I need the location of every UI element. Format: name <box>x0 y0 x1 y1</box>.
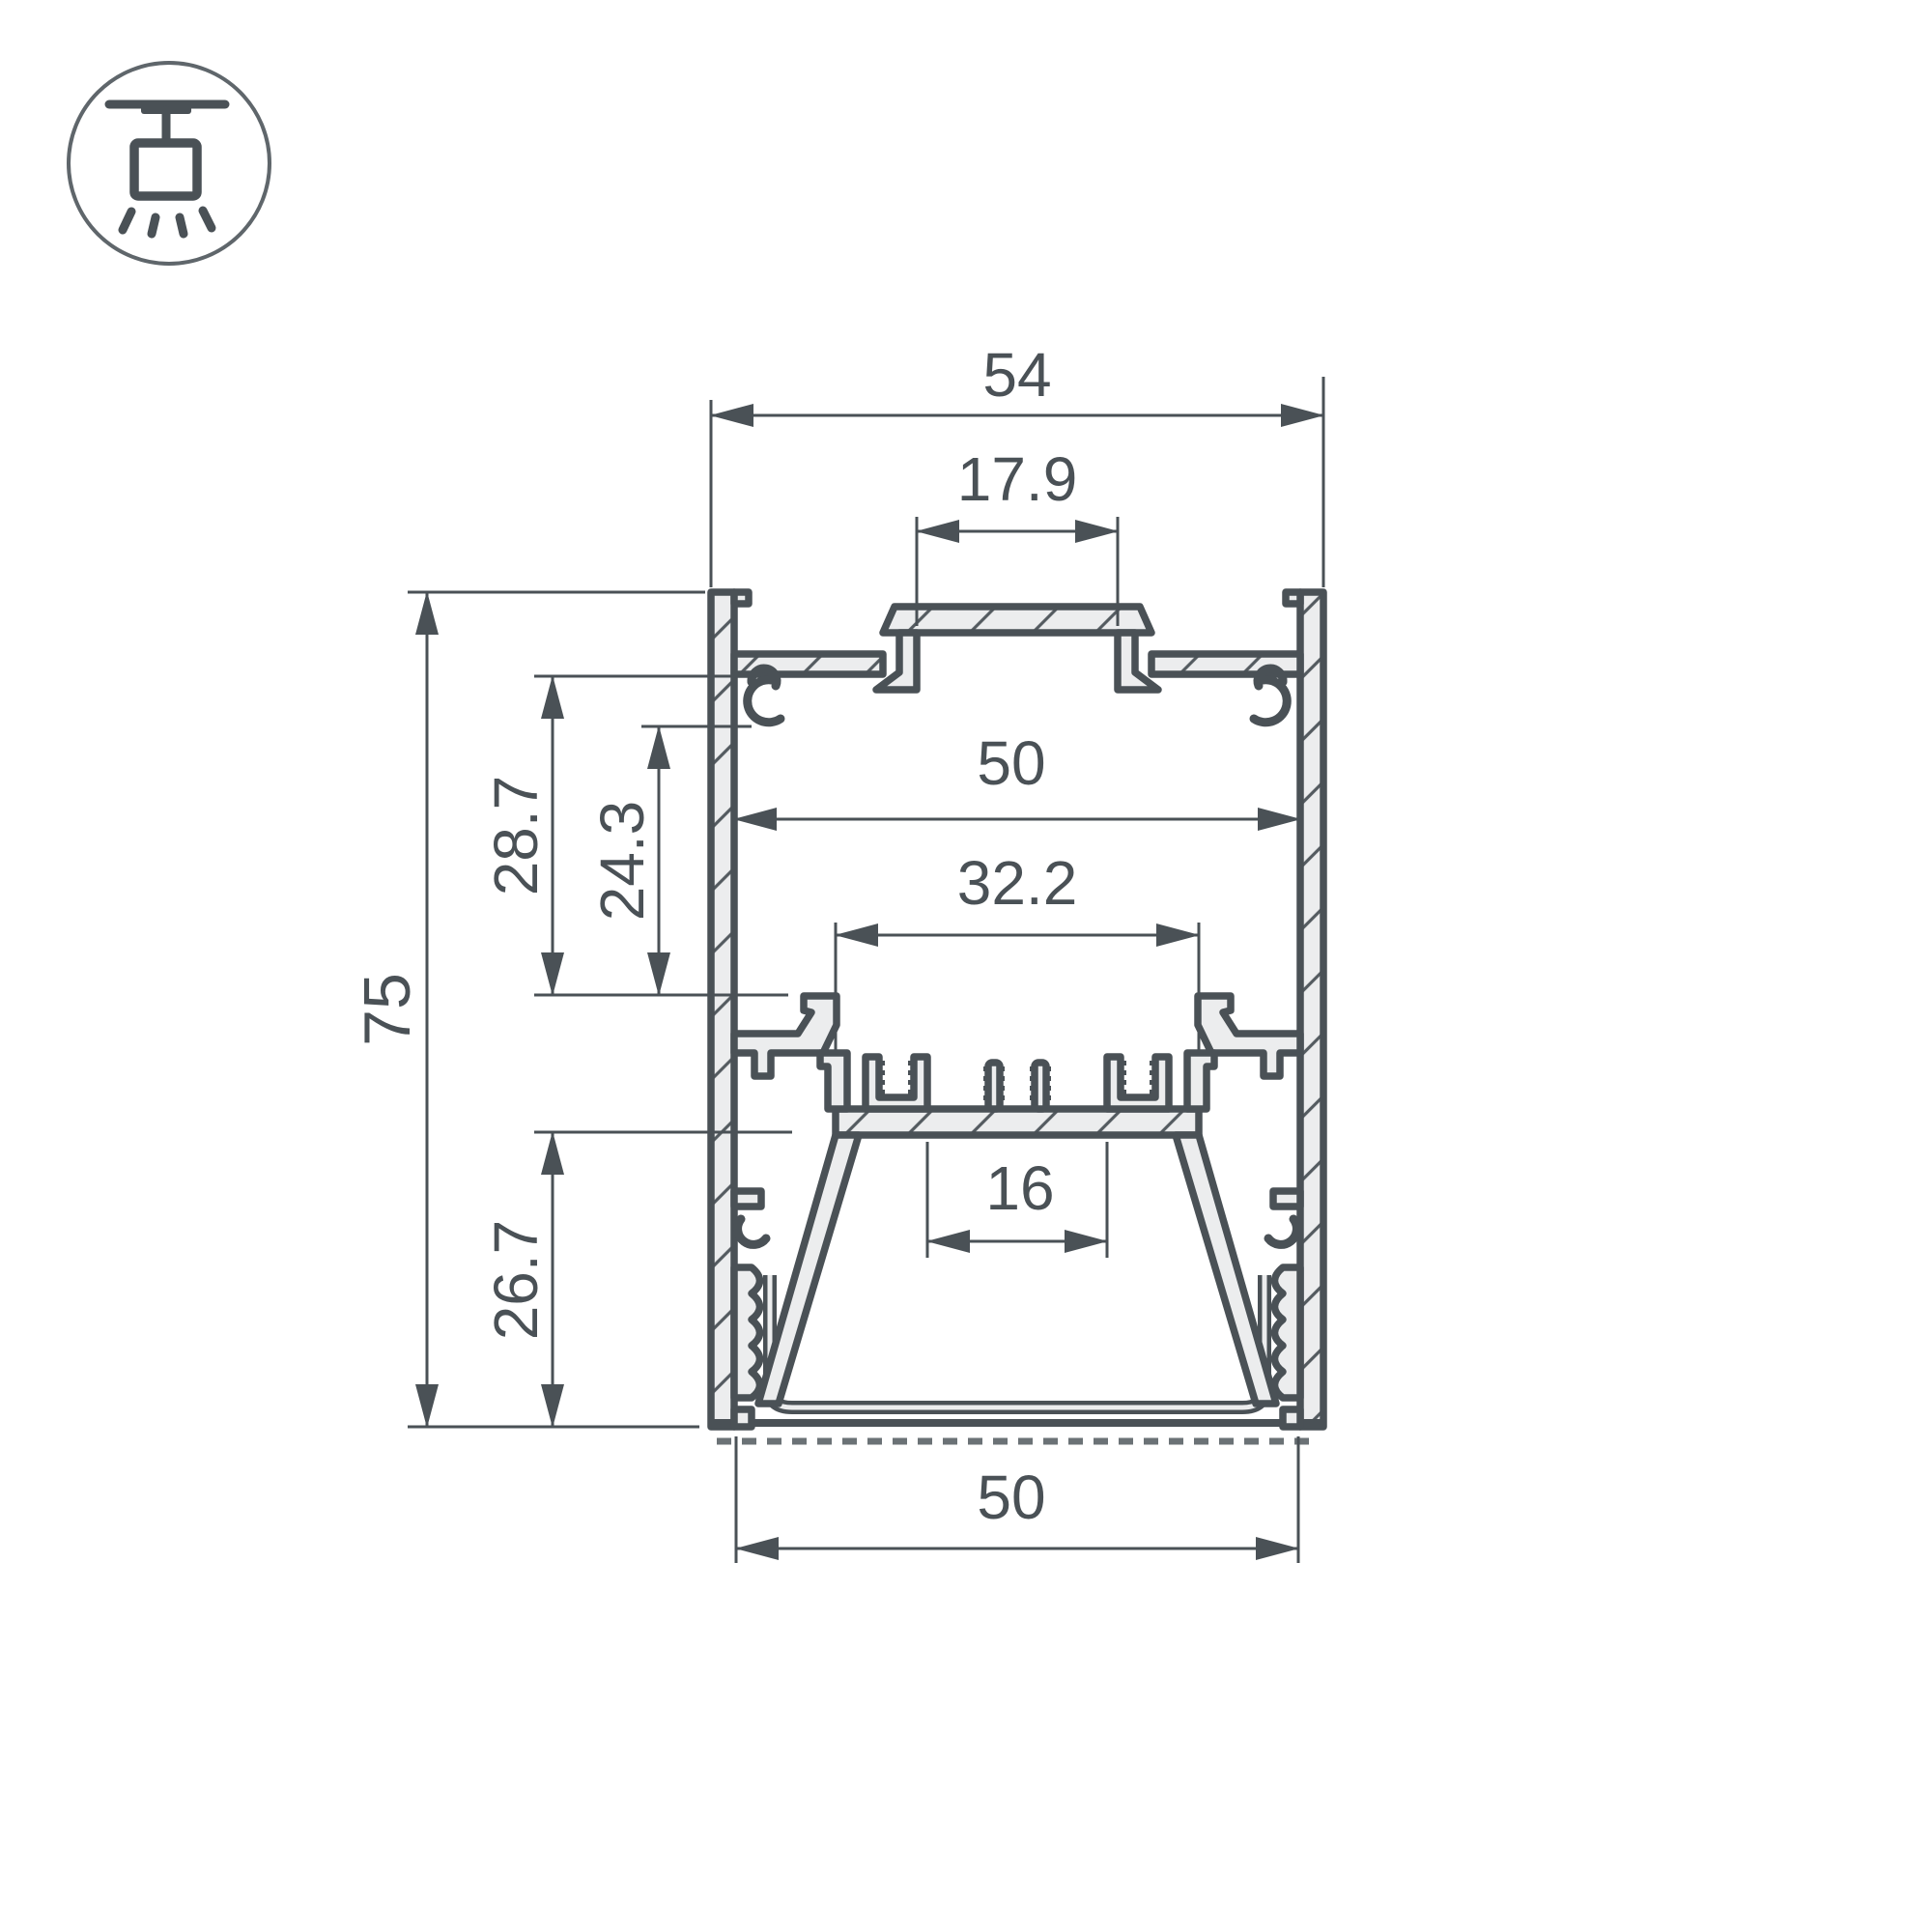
clip-tooth <box>734 1191 761 1207</box>
pendant-mount-icon <box>69 63 270 264</box>
dim-heatsink-width: 32.2 <box>836 848 1199 1053</box>
bottom-lip <box>734 1409 752 1427</box>
dimension-label: 32.2 <box>957 848 1078 918</box>
profile-cross-section <box>711 592 1323 1441</box>
luminaire-body <box>134 143 197 196</box>
diffuser-tray <box>770 1275 1264 1407</box>
dimension-label: 75 <box>351 973 424 1046</box>
serrated-clip-strip <box>734 1267 760 1398</box>
heatsink-end-stub <box>820 1053 847 1109</box>
clip-hook-icon <box>738 1219 766 1244</box>
dim-bottom-width: 50 <box>736 1436 1298 1563</box>
top-center-plate <box>883 607 1151 633</box>
dimension-label: 54 <box>982 340 1051 410</box>
dim-top-slot-width: 17.9 <box>917 444 1118 626</box>
screw-channel <box>866 1057 927 1109</box>
drawing-canvas: 54 17.9 50 32.2 28.7 24.3 <box>0 0 1932 1932</box>
dim-led-channel-width: 16 <box>927 1142 1107 1258</box>
light-rays <box>123 211 212 234</box>
dim-inner-width: 50 <box>734 728 1300 819</box>
diffuser-tray-inner <box>770 1275 1264 1407</box>
heatsink-plate <box>836 1109 1199 1135</box>
dimension-annotations: 54 17.9 50 32.2 28.7 24.3 <box>351 340 1323 1563</box>
dimension-label: 50 <box>977 728 1045 798</box>
center-fin <box>988 1063 1000 1109</box>
dimension-label: 16 <box>985 1153 1054 1223</box>
dimension-label: 17.9 <box>957 444 1078 514</box>
dimension-label: 26.7 <box>481 1220 551 1341</box>
technical-drawing: 54 17.9 50 32.2 28.7 24.3 <box>0 0 1932 1932</box>
top-lip <box>734 592 749 604</box>
icon-circle <box>69 63 270 264</box>
dimension-label: 50 <box>977 1463 1045 1532</box>
dimension-label: 28.7 <box>481 776 551 896</box>
dimension-label: 24.3 <box>587 801 657 922</box>
sloped-reflector-wall <box>758 1135 859 1404</box>
